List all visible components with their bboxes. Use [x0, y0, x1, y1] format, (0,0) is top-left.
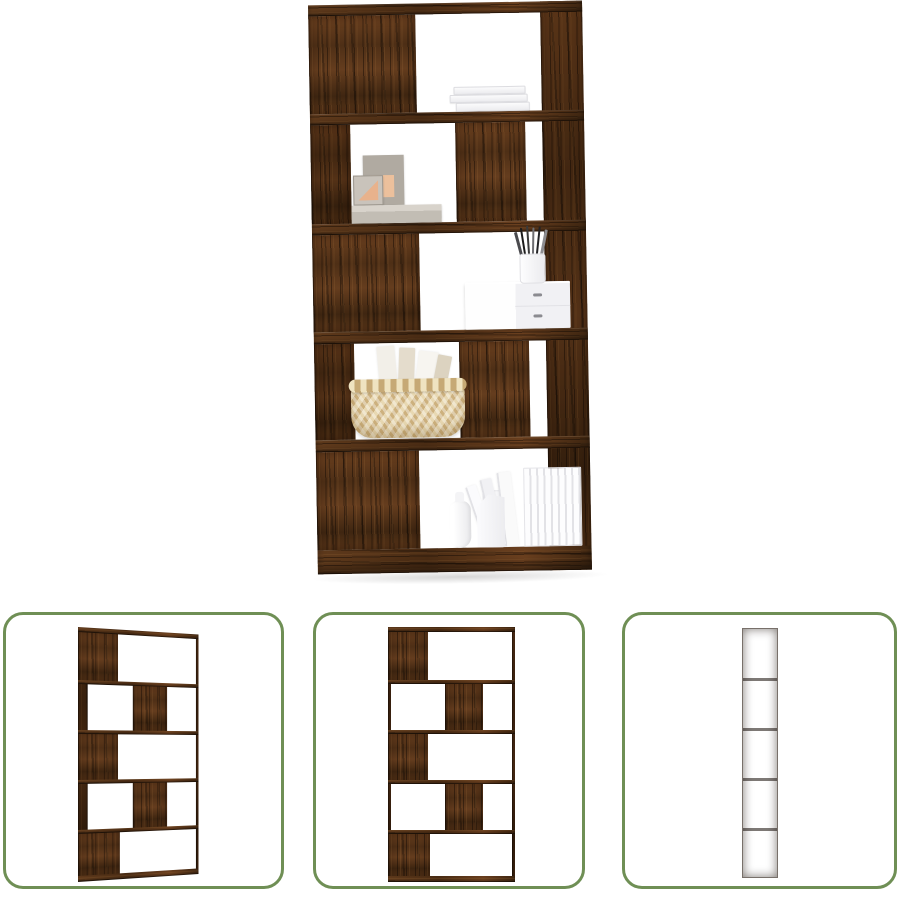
shelf-divider-row2: [455, 122, 527, 222]
white-bottle-vase: [449, 501, 472, 548]
mini-shelf-seam: [743, 828, 777, 831]
thumbnail-angled-view[interactable]: [3, 612, 284, 889]
mini-shelf-side-column: [742, 628, 778, 878]
basket-rim: [349, 378, 467, 393]
mini-shelf-panel: [78, 832, 120, 876]
main-product-view: [308, 1, 592, 580]
drawer-divider: [516, 304, 571, 306]
mini-shelf-seam: [743, 728, 777, 731]
mini-shelf-frame: [512, 627, 515, 882]
mini-shelf-panel: [133, 782, 167, 827]
shelf-panel-row5: [316, 451, 421, 551]
drawer-handle: [533, 293, 542, 296]
mini-shelf-board: [388, 780, 515, 784]
mini-shelf-panel: [78, 632, 118, 681]
mini-shelf-panel: [388, 834, 430, 876]
mini-shelf-board: [388, 730, 515, 734]
mini-shelf-panel: [388, 632, 428, 680]
basket-group: [350, 345, 470, 439]
mini-shelf-board: [388, 876, 515, 882]
vase-book-group: [438, 461, 592, 550]
mini-shelf-panel: [78, 734, 118, 780]
picture-frame-front: [353, 175, 384, 206]
mini-shelf-panel: [133, 686, 167, 731]
frame-artwork: [358, 180, 378, 200]
thumbnail-front-view[interactable]: [313, 612, 585, 889]
shelf-board-base: [318, 546, 592, 575]
mini-shelf-panel: [388, 734, 428, 780]
mini-shelf-frame: [196, 634, 199, 874]
shelf-divider-row4: [459, 341, 531, 438]
stacked-books: [449, 86, 531, 112]
book: [456, 102, 530, 112]
mini-shelf-board: [388, 830, 515, 834]
shelf-left-edge-strip: [310, 125, 352, 225]
frame-decor-group: [351, 149, 447, 224]
mini-shelf-panel: [445, 684, 483, 730]
mini-shelf-panel: [445, 784, 483, 830]
mini-shelf-angled: [78, 627, 198, 882]
mini-shelf-seam: [743, 678, 777, 681]
pen-cup: [519, 253, 546, 283]
shelf-panel-row1: [308, 15, 417, 115]
shelf-panel-row3: [312, 234, 421, 333]
drawer-handle: [533, 314, 542, 317]
stack-box: [352, 204, 442, 224]
row-of-books: [523, 467, 582, 547]
mini-shelf-board: [388, 680, 515, 684]
product-image-page: [0, 0, 900, 898]
drawer-box: [465, 281, 571, 330]
thumbnail-side-view[interactable]: [622, 612, 897, 889]
mini-shelf-seam: [743, 778, 777, 781]
mini-shelf-front: [388, 627, 515, 882]
mini-shelf-board: [388, 627, 515, 632]
